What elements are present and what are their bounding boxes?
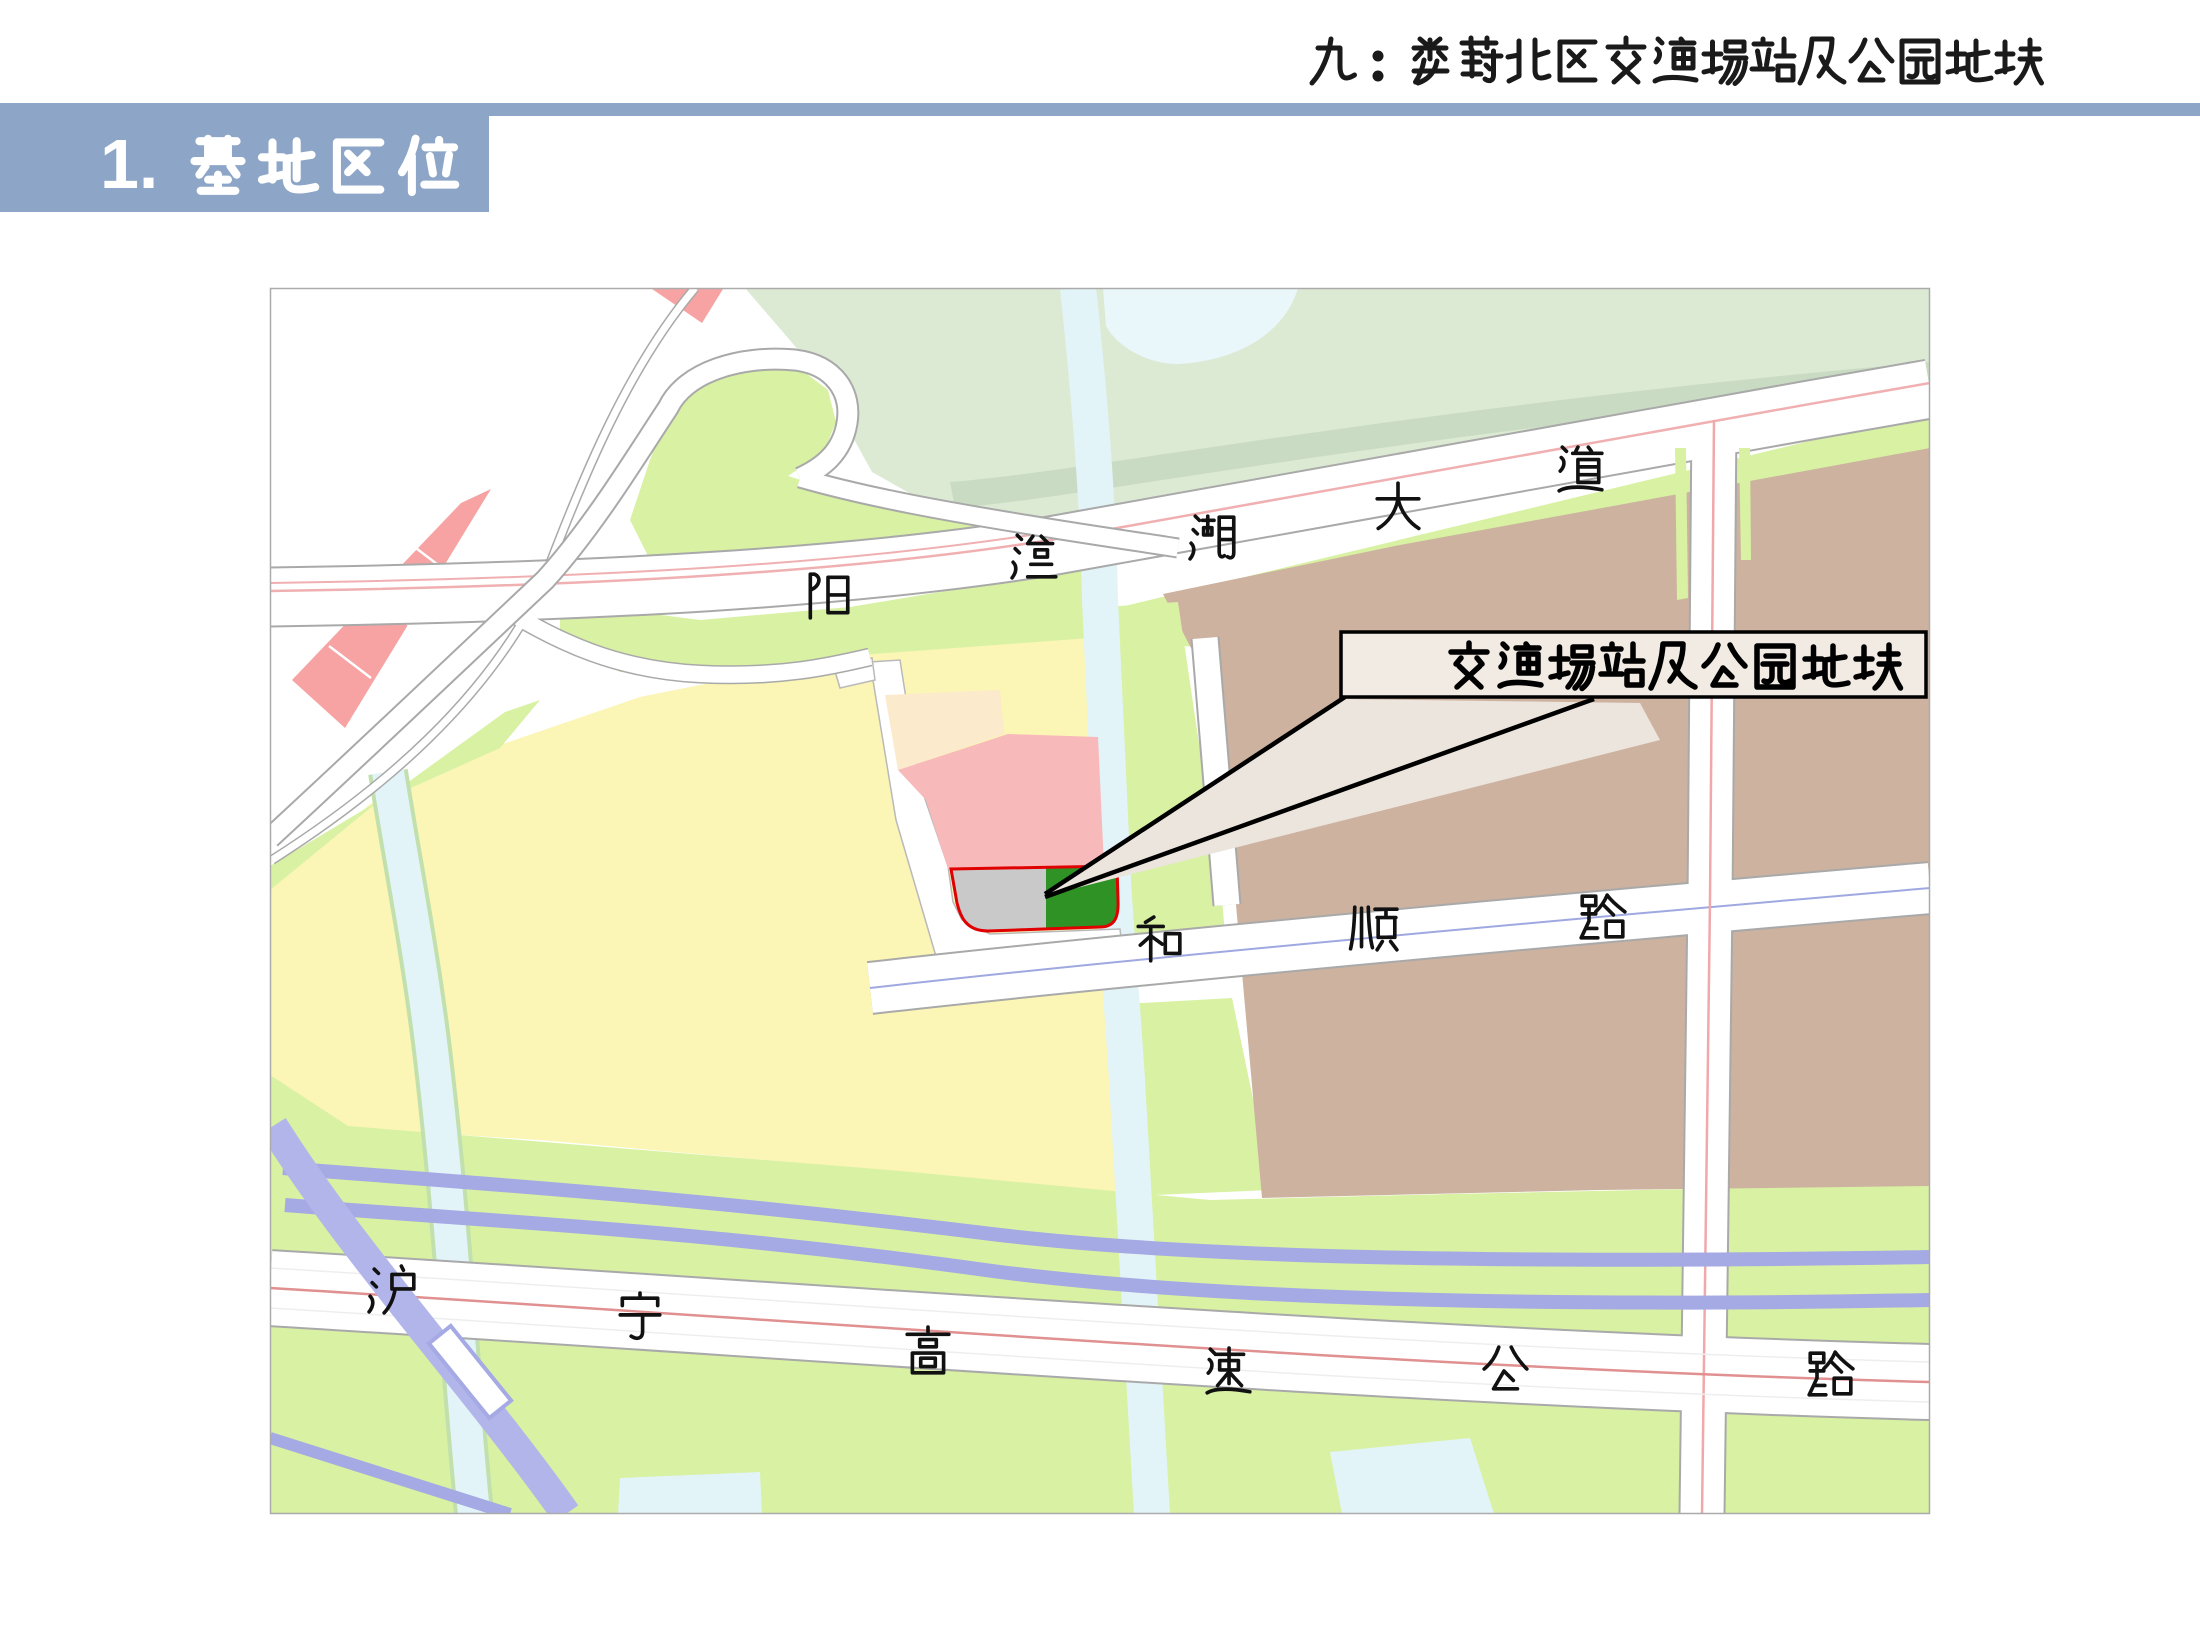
svg-text:1.: 1.: [100, 125, 158, 203]
